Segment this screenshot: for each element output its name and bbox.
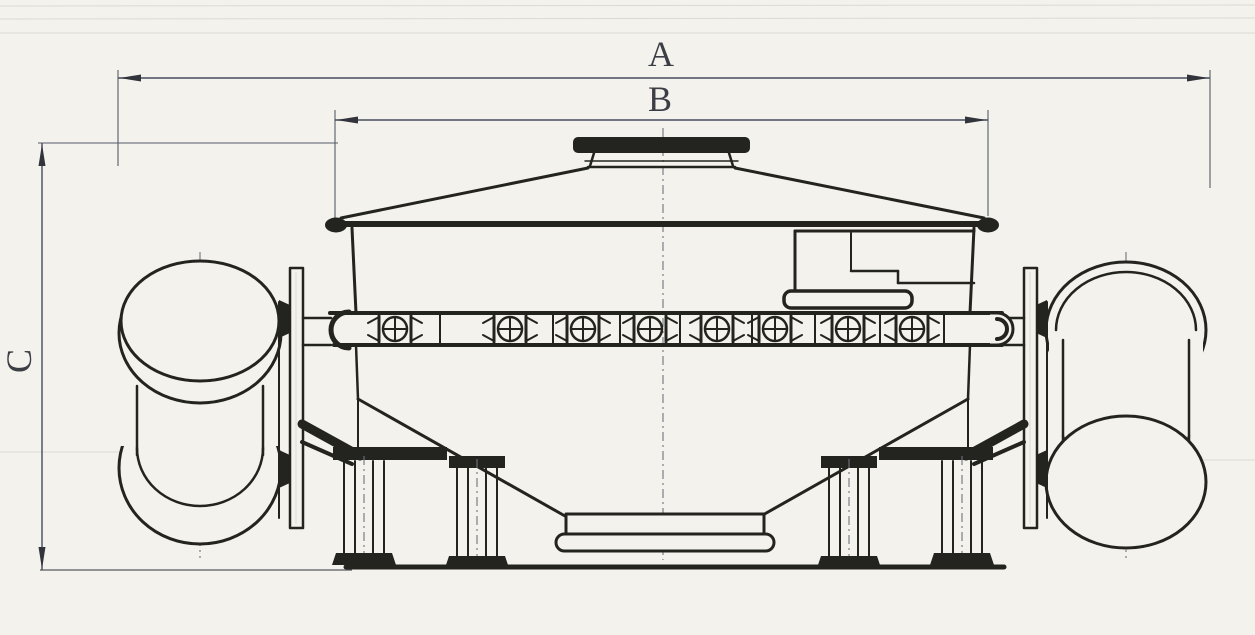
technical-drawing: A B C: [0, 0, 1255, 635]
clamp-bolt: [690, 316, 744, 342]
clamp-cap-right: [990, 313, 1013, 345]
spring-leg: [332, 456, 396, 565]
rim-bead-right: [977, 218, 999, 233]
dimension-label-b: B: [648, 79, 672, 119]
spring-leg: [445, 459, 509, 568]
clamp-bolt: [623, 316, 677, 342]
dust-cover: [325, 168, 999, 233]
support-bracket-right: [879, 447, 993, 460]
clamp-hook-left: [331, 312, 349, 348]
rim-bead-left: [325, 218, 347, 233]
clamp-bolt: [748, 316, 802, 342]
dimension-label-c: C: [0, 349, 39, 373]
side-discharge-spout: [784, 231, 974, 308]
vibration-motor-right: [1024, 262, 1206, 548]
motor-end-cover: [1046, 416, 1206, 548]
clamp-band: [330, 312, 1013, 348]
feed-inlet: [573, 137, 750, 167]
vibration-motor-left: [119, 261, 303, 544]
clamp-bolt: [556, 316, 610, 342]
dimension-label-a: A: [648, 34, 674, 74]
drawing-canvas: A B C: [0, 0, 1255, 635]
bottom-discharge-flange: [556, 514, 774, 551]
clamp-bolt: [821, 316, 875, 342]
clamp-bolt: [483, 316, 537, 342]
support-bracket-left: [333, 447, 447, 460]
spring-leg: [817, 459, 881, 568]
clamp-bolt: [885, 316, 939, 342]
spring-leg: [930, 456, 994, 565]
motor-end-cover: [121, 261, 279, 381]
clamp-bolt: [368, 316, 422, 342]
